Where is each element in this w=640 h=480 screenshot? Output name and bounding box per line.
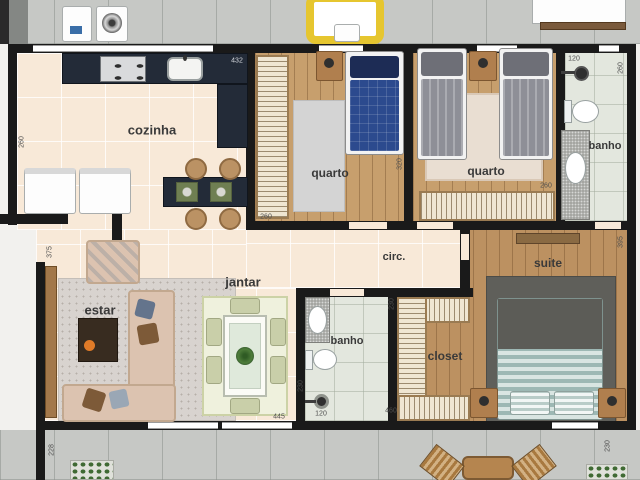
dining-chair <box>230 298 260 314</box>
bed-pillow <box>503 52 549 76</box>
window-suite <box>552 422 598 429</box>
kitchen-counter-top <box>62 53 248 84</box>
tv-fireplace-unit <box>78 318 118 362</box>
suite-bed-throw <box>498 299 602 349</box>
washer <box>24 168 76 214</box>
dim-banho2-width: 120 <box>315 411 327 418</box>
kitchen-faucet <box>183 55 187 61</box>
window-cozinha <box>33 45 213 52</box>
suite-tv-rack <box>516 233 580 244</box>
bar-stool <box>219 208 241 230</box>
bed-pillow <box>350 56 399 78</box>
quarto1-wardrobe <box>256 55 289 219</box>
bar-stool <box>185 158 207 180</box>
quarto2-wardrobe <box>419 191 555 221</box>
label-suite: suite <box>534 256 562 270</box>
bed-pillow <box>554 391 594 415</box>
quarto1-bed <box>345 51 404 155</box>
ac-fan-icon <box>102 13 122 33</box>
dim-jantar-width: 445 <box>273 414 285 421</box>
wall-quarto1-quarto2 <box>404 44 413 230</box>
shower-drain <box>314 394 329 409</box>
dim-closet-depth: 230 <box>389 298 396 310</box>
quarto1-lamp <box>324 58 334 68</box>
bed-duvet <box>421 79 463 156</box>
dim-cozinha-left: 260 <box>19 136 26 148</box>
place-setting <box>176 182 198 202</box>
label-estar: estar <box>84 303 115 318</box>
kitchen-counter-side <box>217 84 248 148</box>
door-banho2 <box>330 289 364 296</box>
armchair <box>86 240 140 284</box>
dining-chair <box>270 356 286 384</box>
label-cozinha: cozinha <box>128 123 176 138</box>
quarto2-bed-left <box>417 48 467 160</box>
dining-chair <box>206 356 222 384</box>
quarto1-rug <box>293 100 345 212</box>
dim-banho2-depth: 230 <box>298 380 305 392</box>
water-tank-detail <box>70 26 82 34</box>
dim-banho1-depth: 260 <box>618 62 625 74</box>
suite-lamp <box>479 396 489 406</box>
bar-stool <box>219 158 241 180</box>
lounge-chair-seat <box>334 24 360 42</box>
wall-right <box>627 44 636 430</box>
suite-bed <box>497 298 603 420</box>
bed-pillow <box>510 391 550 415</box>
sofa-cushion <box>136 322 159 345</box>
toilet-tank <box>564 100 572 123</box>
dim-banho1-width: 120 <box>568 56 580 63</box>
neighbor-wall-dark <box>0 0 9 44</box>
dining-chair <box>270 318 286 346</box>
window-banho1 <box>599 45 619 52</box>
dim-terraco-direita: 230 <box>605 440 612 452</box>
wall-circ-bottom <box>296 288 473 297</box>
fireplace-flame-icon <box>84 340 95 351</box>
sofa-cushion <box>108 388 129 409</box>
centerpiece-plant <box>236 347 254 365</box>
toilet-tank <box>305 350 313 370</box>
freezer <box>79 168 131 214</box>
bed-duvet <box>503 79 549 156</box>
water-tank <box>62 6 92 42</box>
door-banho1 <box>595 222 621 229</box>
quarto2-bed-right <box>499 48 553 160</box>
dim-quarto1-width: 260 <box>260 214 272 221</box>
label-jantar: jantar <box>225 275 260 290</box>
wall-kitchen-bottom-left <box>0 214 68 224</box>
floor-plan: cozinha quarto quarto banho circ. estar … <box>0 0 640 480</box>
wall-banho2-left <box>296 288 305 430</box>
window-jantar-door <box>222 422 292 429</box>
quarto2-lamp <box>478 58 488 68</box>
door-suite <box>461 234 469 260</box>
dim-estar-left: 375 <box>47 246 54 258</box>
place-setting <box>210 182 232 202</box>
wall-left-upper <box>8 44 17 225</box>
suite-lamp <box>607 396 617 406</box>
stove <box>100 56 146 82</box>
dim-closet-width: 460 <box>385 408 397 415</box>
planter-left <box>70 460 114 480</box>
dim-cozinha-width: 432 <box>231 58 243 65</box>
dim-quartos-wall: 320 <box>397 158 404 170</box>
dining-chair <box>230 398 260 414</box>
wall-estar-left <box>36 262 45 480</box>
door-balcony-panel <box>45 266 57 418</box>
window-estar <box>148 422 218 429</box>
dim-terraco-esquerda: 228 <box>49 444 56 456</box>
planter-right <box>586 464 628 480</box>
terrace-table-top <box>532 0 626 24</box>
door-quarto1 <box>349 222 387 229</box>
patio-table <box>462 456 514 480</box>
toilet <box>572 100 599 123</box>
door-quarto2 <box>417 222 453 229</box>
toilet <box>313 349 337 370</box>
outside-left-strip <box>0 225 36 430</box>
dim-suite-depth: 395 <box>618 236 625 248</box>
bed-duvet <box>350 80 399 151</box>
label-quarto2: quarto <box>467 164 504 178</box>
closet-wardrobe-bottom <box>397 395 470 421</box>
label-circ: circ. <box>383 251 406 263</box>
label-banho2: banho <box>331 335 364 347</box>
bar-stool <box>185 208 207 230</box>
banho2-sink <box>308 306 327 334</box>
banho1-sink <box>565 152 586 184</box>
dim-quarto2-width: 260 <box>540 183 552 190</box>
shower-head <box>574 66 589 81</box>
shower-arm <box>305 400 316 403</box>
dining-chair <box>206 318 222 346</box>
terrace-bench <box>540 22 626 30</box>
label-closet: closet <box>428 349 463 363</box>
shower-arm <box>561 71 575 74</box>
bed-pillow <box>421 52 463 76</box>
room-circ-floor <box>246 221 460 288</box>
label-quarto1: quarto <box>311 166 348 180</box>
label-banho1: banho <box>589 140 622 152</box>
